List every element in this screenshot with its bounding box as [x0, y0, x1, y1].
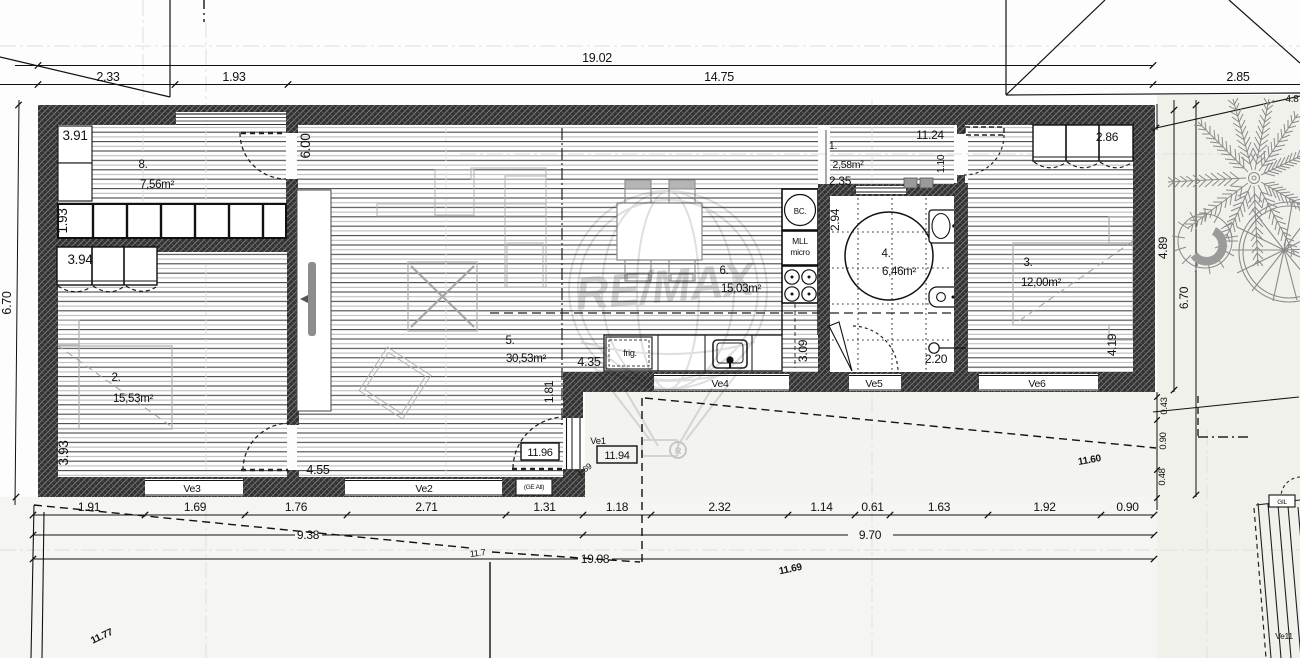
svg-text:3.93: 3.93: [56, 440, 71, 465]
svg-text:Ve11: Ve11: [1275, 631, 1293, 641]
svg-text:Ve2: Ve2: [415, 483, 433, 495]
svg-text:4.89: 4.89: [1156, 236, 1170, 259]
svg-text:1.93: 1.93: [222, 70, 245, 84]
svg-text:2.32: 2.32: [708, 500, 731, 514]
svg-text:1.63: 1.63: [928, 500, 951, 514]
svg-text:2.35: 2.35: [829, 174, 852, 188]
svg-text:1.93: 1.93: [55, 208, 70, 233]
svg-text:1.81: 1.81: [542, 380, 556, 403]
svg-text:0.43: 0.43: [1159, 397, 1170, 414]
svg-text:Ve3: Ve3: [183, 483, 201, 495]
svg-text:3.91: 3.91: [62, 128, 87, 143]
svg-text:(GE Atl): (GE Atl): [524, 484, 544, 491]
svg-text:9.70: 9.70: [859, 528, 882, 542]
svg-text:14.75: 14.75: [704, 70, 734, 84]
svg-text:1.: 1.: [829, 140, 837, 152]
svg-text:7,56m²: 7,56m²: [140, 179, 174, 191]
svg-text:19.08: 19.08: [581, 552, 610, 566]
svg-text:BC.: BC.: [794, 207, 807, 216]
svg-text:1.10: 1.10: [936, 154, 947, 173]
svg-text:Ve6: Ve6: [1028, 378, 1046, 390]
svg-text:5.: 5.: [506, 335, 515, 347]
svg-text:1.31: 1.31: [533, 500, 556, 514]
svg-text:2.86: 2.86: [1096, 130, 1119, 144]
svg-text:4.55: 4.55: [306, 463, 329, 477]
svg-text:Ve5: Ve5: [865, 378, 883, 390]
svg-text:0.61: 0.61: [861, 500, 884, 514]
svg-text:2,58m²: 2,58m²: [833, 159, 865, 171]
svg-text:3.: 3.: [1024, 257, 1033, 269]
svg-text:1.69: 1.69: [184, 500, 207, 514]
svg-text:3.94: 3.94: [67, 252, 93, 267]
svg-text:30,53m²: 30,53m²: [506, 353, 547, 365]
svg-text:12,00m²: 12,00m²: [1021, 277, 1062, 289]
svg-text:1.91: 1.91: [78, 500, 101, 514]
svg-text:6.70: 6.70: [1177, 286, 1191, 309]
svg-text:micro: micro: [790, 247, 810, 257]
svg-text:6,46m²: 6,46m²: [882, 266, 916, 278]
svg-text:0.90: 0.90: [1116, 500, 1139, 514]
svg-text:4.19: 4.19: [1105, 333, 1119, 356]
svg-text:1.18: 1.18: [606, 500, 629, 514]
svg-text:MLL: MLL: [792, 236, 808, 246]
svg-text:4.35: 4.35: [577, 355, 600, 369]
svg-text:2.: 2.: [112, 372, 121, 384]
svg-text:GIL: GIL: [1277, 499, 1287, 506]
svg-text:1.92: 1.92: [1033, 500, 1056, 514]
svg-text:1.14: 1.14: [810, 500, 833, 514]
svg-text:6.70: 6.70: [0, 291, 14, 314]
svg-text:2.20: 2.20: [925, 352, 948, 366]
svg-text:0.90: 0.90: [1158, 432, 1169, 449]
svg-text:1.76: 1.76: [285, 500, 308, 514]
svg-text:19.02: 19.02: [582, 51, 612, 65]
svg-text:4.8: 4.8: [1285, 94, 1299, 105]
svg-text:11.96: 11.96: [527, 447, 552, 459]
svg-text:9.38: 9.38: [297, 528, 320, 542]
svg-text:11.24: 11.24: [916, 128, 944, 142]
svg-text:3.09: 3.09: [796, 339, 810, 362]
svg-text:0.48: 0.48: [1157, 468, 1168, 485]
svg-text:15,53m²: 15,53m²: [113, 393, 154, 405]
svg-text:11.94: 11.94: [604, 450, 629, 462]
svg-text:R: R: [675, 446, 682, 456]
svg-text:6.00: 6.00: [298, 133, 313, 158]
svg-text:8.: 8.: [139, 159, 148, 171]
svg-text:11.7: 11.7: [469, 547, 486, 559]
svg-text:2.71: 2.71: [415, 500, 438, 514]
svg-text:4.: 4.: [882, 248, 891, 260]
svg-text:2.94: 2.94: [828, 208, 842, 231]
svg-text:2.85: 2.85: [1226, 70, 1249, 84]
